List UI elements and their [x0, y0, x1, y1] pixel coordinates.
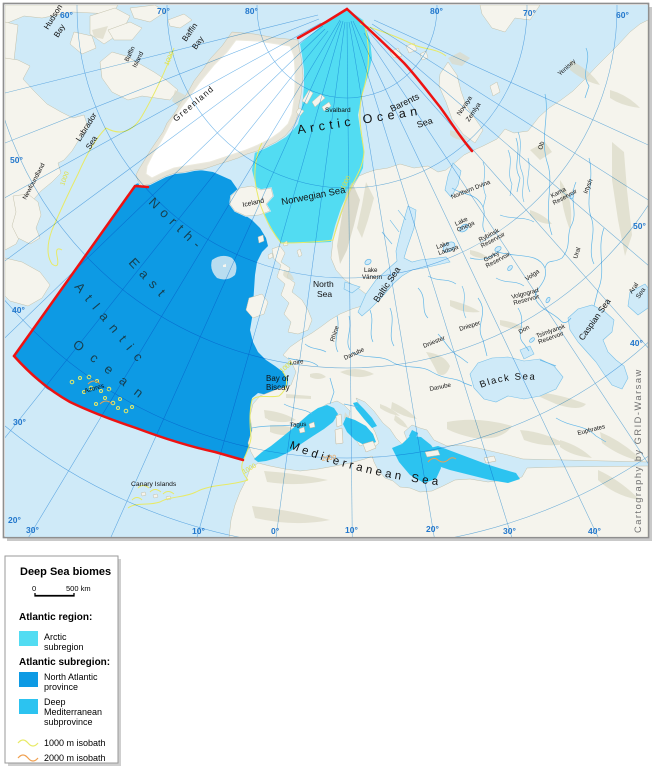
svg-text:10°: 10° — [192, 526, 205, 536]
svg-text:Bay of: Bay of — [266, 374, 289, 383]
svg-text:50°: 50° — [633, 221, 646, 231]
svg-text:30°: 30° — [26, 525, 39, 535]
svg-text:80°: 80° — [430, 6, 443, 16]
svg-text:Vänern: Vänern — [362, 274, 383, 281]
svg-text:40°: 40° — [12, 305, 25, 315]
svg-text:30°: 30° — [503, 526, 516, 536]
svg-text:70°: 70° — [157, 6, 170, 16]
svg-text:20°: 20° — [8, 515, 21, 525]
svg-text:0°: 0° — [271, 526, 280, 536]
svg-text:40°: 40° — [630, 338, 643, 348]
svg-text:Sea: Sea — [317, 289, 332, 299]
svg-text:Deep Sea biomes: Deep Sea biomes — [20, 566, 111, 578]
svg-text:subregion: subregion — [44, 642, 84, 652]
svg-text:60°: 60° — [616, 10, 629, 20]
svg-text:Tagus: Tagus — [290, 421, 307, 429]
svg-text:Biscay: Biscay — [266, 383, 290, 392]
svg-text:30°: 30° — [13, 417, 26, 427]
svg-text:Deep: Deep — [44, 697, 66, 707]
svg-text:North: North — [313, 279, 334, 289]
svg-text:50°: 50° — [10, 155, 23, 165]
svg-text:Svalbard: Svalbard — [325, 107, 351, 114]
svg-text:80°: 80° — [245, 6, 258, 16]
svg-text:40°: 40° — [588, 526, 601, 536]
svg-text:Atlantic subregion:: Atlantic subregion: — [19, 657, 110, 668]
svg-text:70°: 70° — [523, 8, 536, 18]
svg-text:North Atlantic: North Atlantic — [44, 672, 98, 682]
svg-text:10°: 10° — [345, 525, 358, 535]
svg-text:province: province — [44, 682, 78, 692]
svg-text:60°: 60° — [60, 10, 73, 20]
svg-text:0: 0 — [32, 584, 36, 593]
svg-text:Mediterranean: Mediterranean — [44, 707, 102, 717]
svg-text:1000 m isobath: 1000 m isobath — [44, 738, 106, 748]
svg-text:20°: 20° — [426, 524, 439, 534]
svg-text:Cartography by GRID-Warsaw: Cartography by GRID-Warsaw — [633, 368, 643, 533]
svg-text:Canary Islands: Canary Islands — [131, 481, 177, 488]
svg-text:Arctic: Arctic — [44, 632, 67, 642]
svg-text:Lake: Lake — [364, 267, 378, 274]
svg-text:500 km: 500 km — [66, 584, 91, 593]
svg-text:Atlantic region:: Atlantic region: — [19, 612, 92, 623]
svg-text:subprovince: subprovince — [44, 717, 93, 727]
svg-text:2000 m isobath: 2000 m isobath — [44, 753, 106, 763]
